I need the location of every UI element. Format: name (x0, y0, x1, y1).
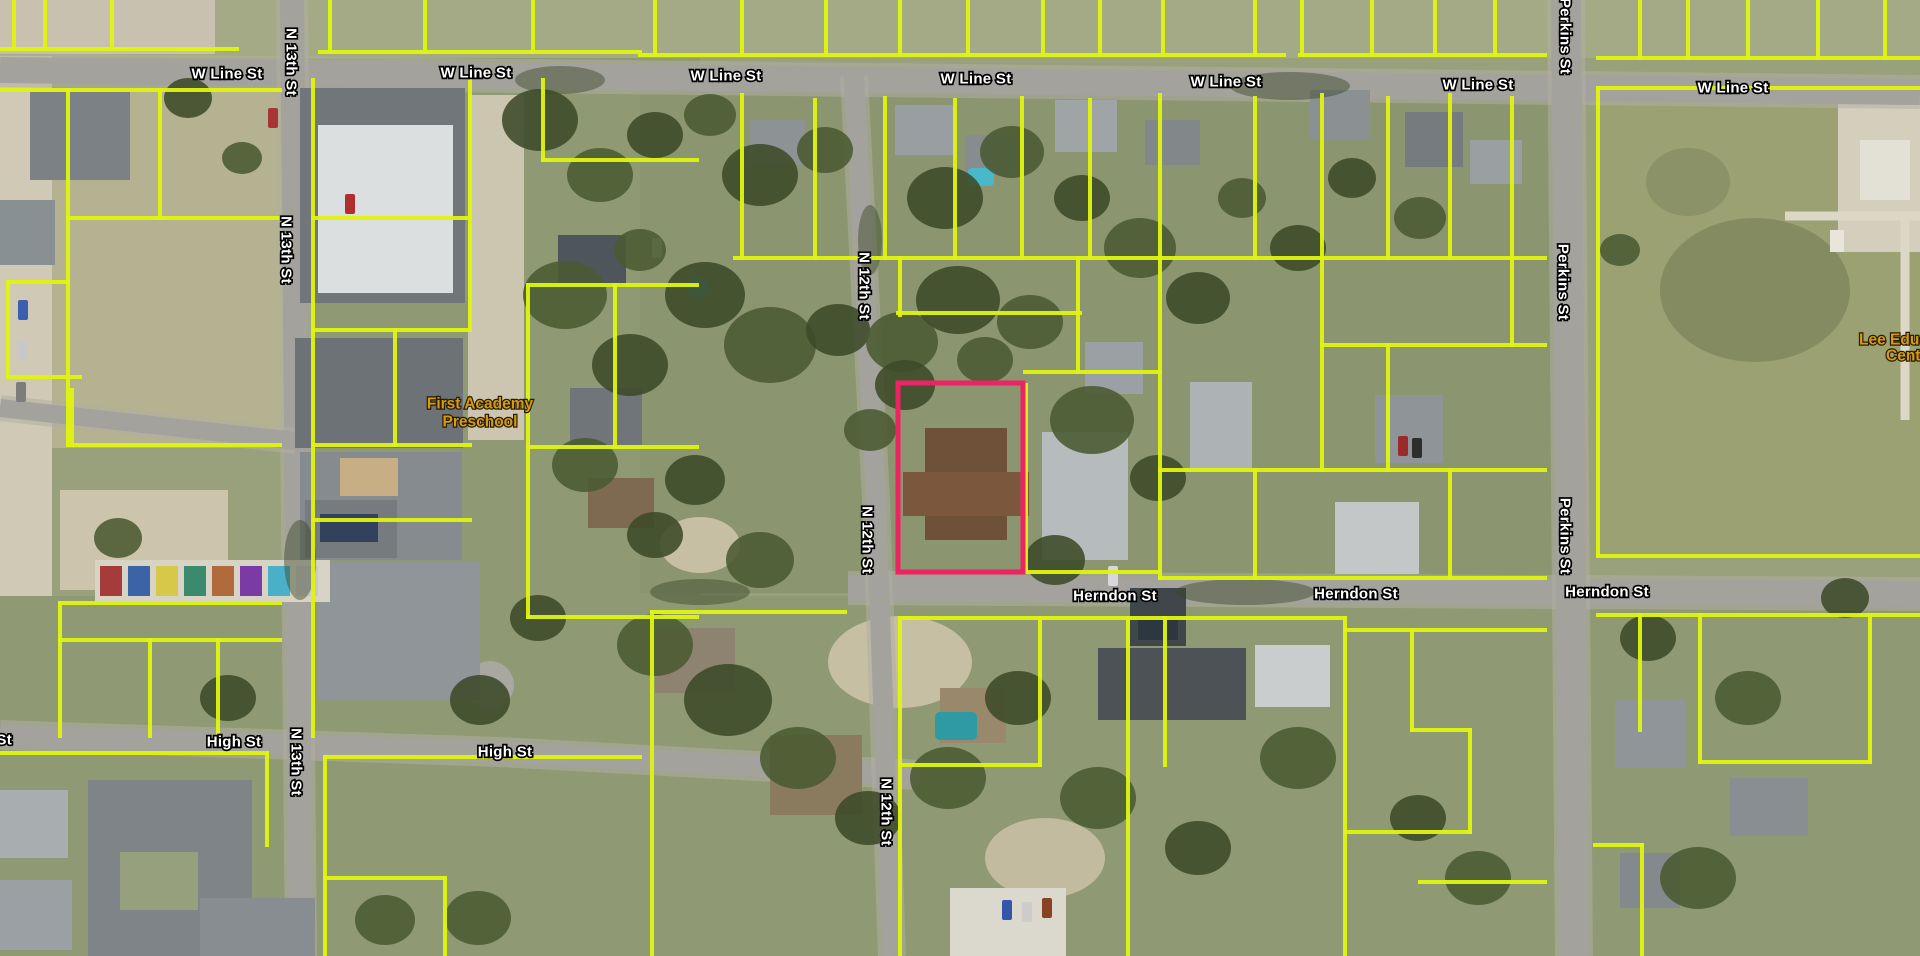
street-label: Perkins St (1557, 0, 1574, 74)
street-label: W Line St (690, 68, 761, 85)
street-label: Herndon St (1314, 586, 1398, 603)
street-label: N 13th St (278, 216, 295, 284)
street-label: W Line St (940, 71, 1011, 88)
street-label: High St (207, 734, 262, 751)
street-label: N 12th St (856, 252, 873, 320)
street-label: N 12th St (859, 506, 876, 574)
street-label: Perkins St (1555, 244, 1572, 320)
street-label: N 13th St (288, 728, 305, 796)
poi-label: First Academy (427, 396, 534, 413)
street-label: Herndon St (1073, 588, 1157, 605)
street-label: Perkins St (1557, 498, 1574, 574)
street-label: W Line St (1697, 80, 1768, 97)
street-label: W Line St (440, 65, 511, 82)
street-label: N 12th St (878, 778, 895, 846)
street-label: W Line St (1442, 77, 1513, 94)
street-label: W Line St (191, 66, 262, 83)
street-label: Herndon St (1565, 584, 1649, 601)
poi-label: Lee Educa (1859, 332, 1920, 349)
map-canvas[interactable]: W Line StW Line StW Line StW Line StW Li… (0, 0, 1920, 956)
street-label: High St (478, 744, 533, 761)
street-label: St (0, 732, 12, 749)
poi-label: Cente (1886, 348, 1920, 365)
street-label: N 13th St (283, 28, 300, 96)
poi-label: Preschool (443, 414, 518, 431)
street-label: W Line St (1190, 74, 1261, 91)
